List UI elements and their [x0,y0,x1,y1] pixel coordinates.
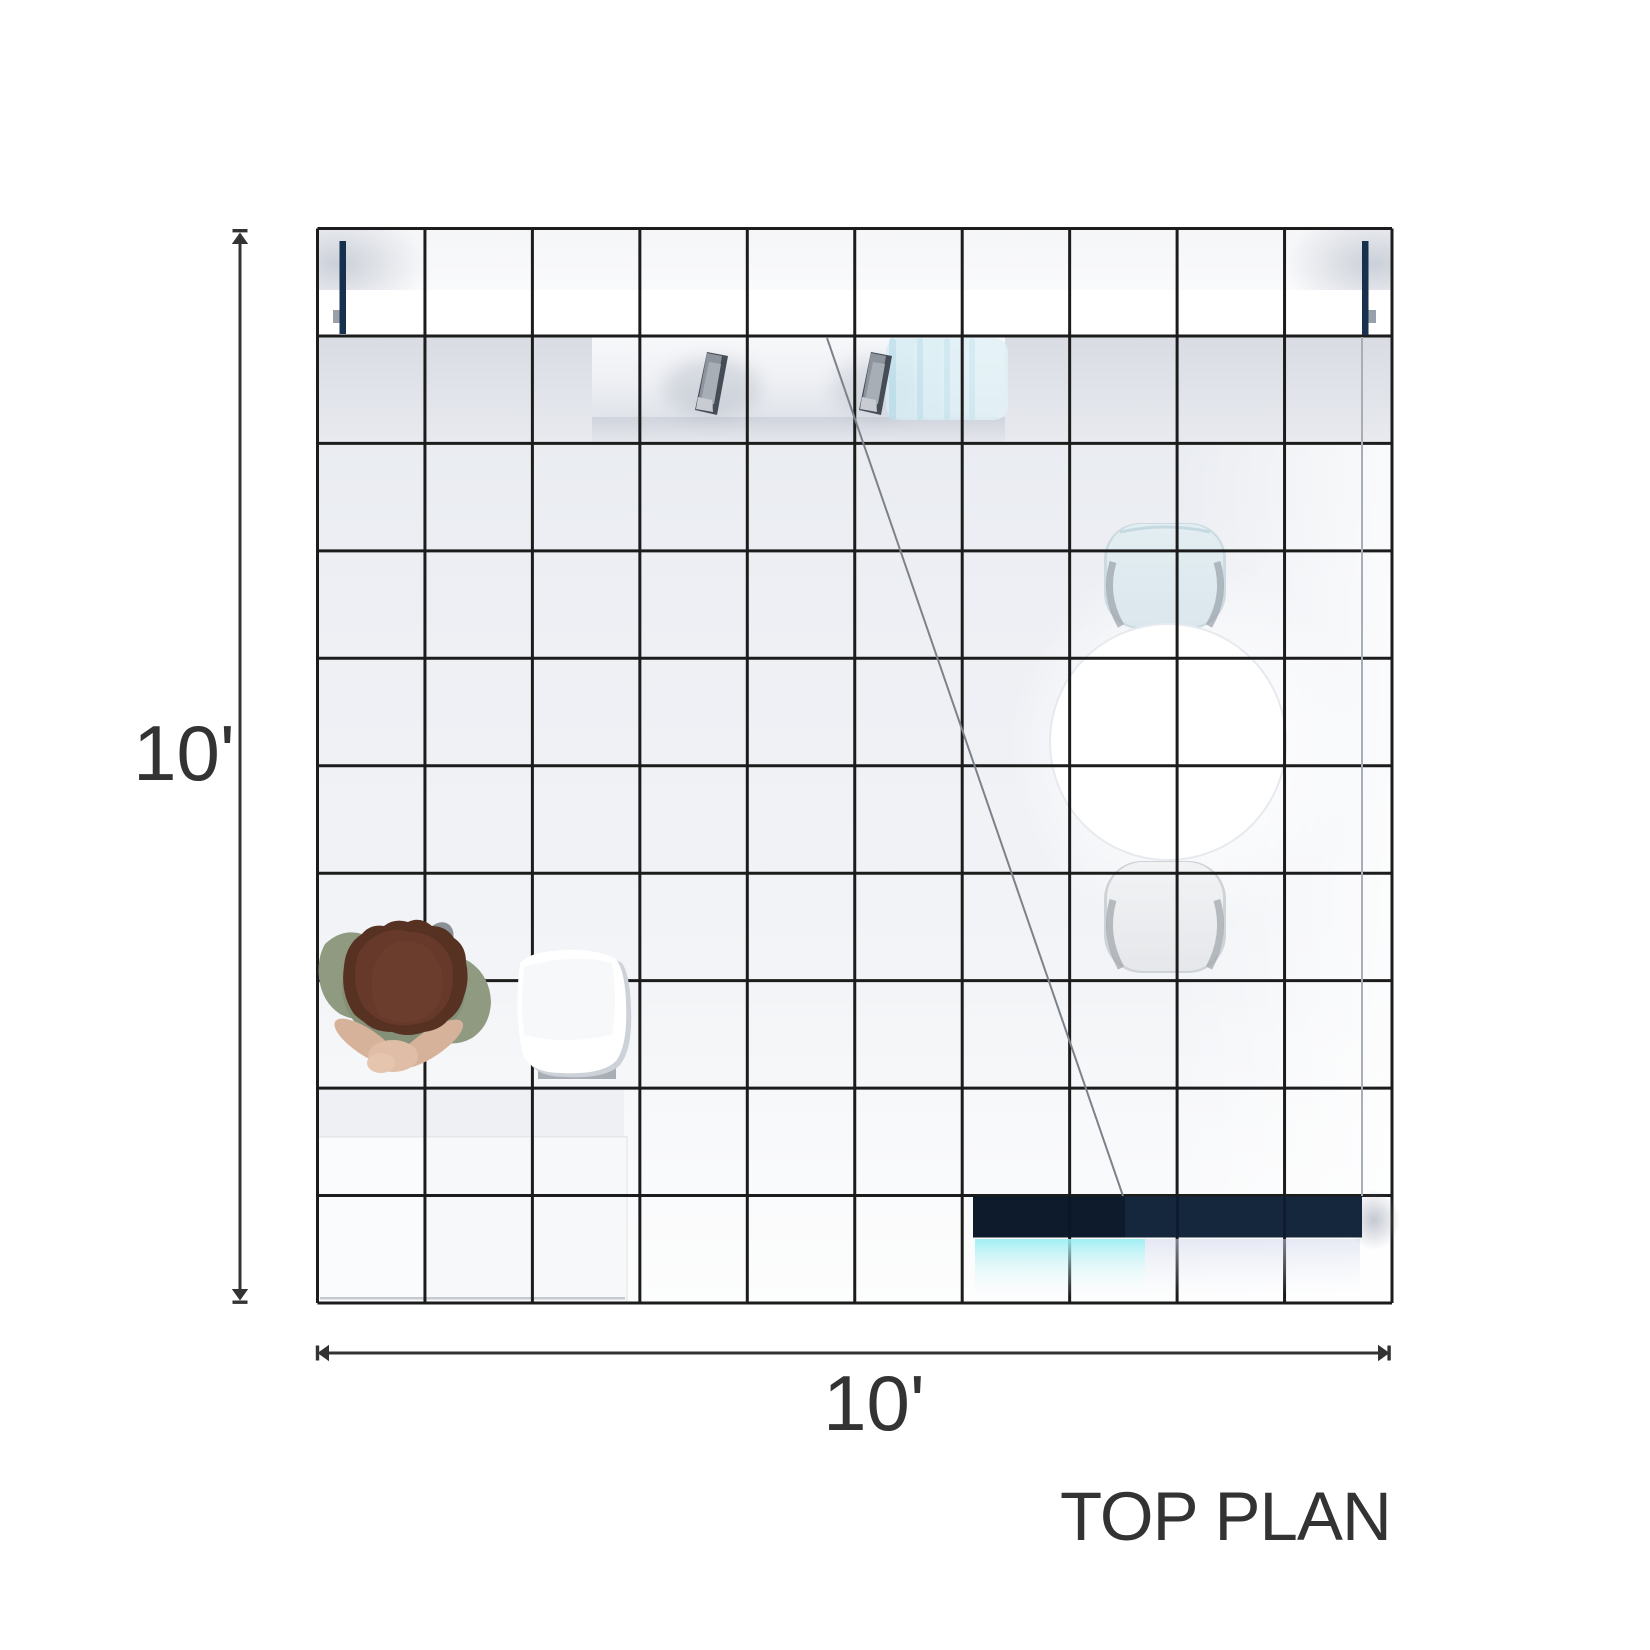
svg-text:10': 10' [133,709,235,797]
svg-text:TOP PLAN: TOP PLAN [1060,1478,1391,1555]
svg-text:10': 10' [823,1359,925,1447]
